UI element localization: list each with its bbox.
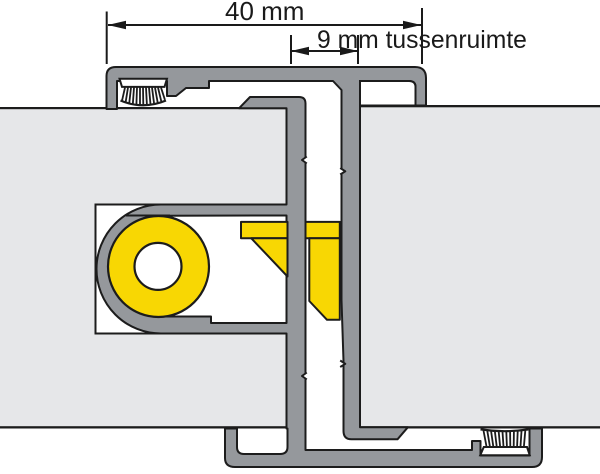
svg-text:9 mm tussenruimte: 9 mm tussenruimte [317, 27, 527, 54]
svg-text:40 mm: 40 mm [225, 0, 304, 26]
